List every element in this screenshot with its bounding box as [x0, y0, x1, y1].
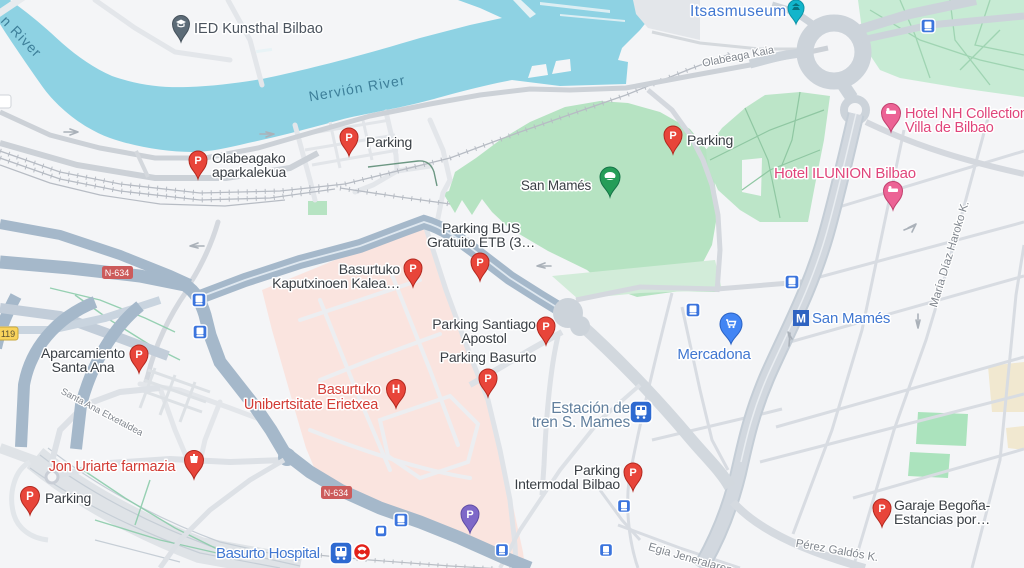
svg-text:Parking: Parking — [687, 132, 733, 148]
svg-text:M: M — [796, 312, 806, 326]
svg-text:P: P — [135, 349, 142, 361]
svg-text:H: H — [392, 384, 400, 396]
svg-text:San Mamés: San Mamés — [812, 310, 890, 327]
svg-text:119: 119 — [1, 329, 15, 339]
svg-text:P: P — [629, 467, 636, 479]
svg-text:P: P — [484, 373, 491, 385]
svg-text:Hotel ILUNION Bilbao: Hotel ILUNION Bilbao — [774, 165, 916, 182]
svg-text:Apostol: Apostol — [461, 330, 506, 346]
svg-text:P: P — [345, 132, 352, 144]
svg-text:Jon Uriarte farmazia: Jon Uriarte farmazia — [49, 459, 177, 475]
svg-text:IED Kunsthal Bilbao: IED Kunsthal Bilbao — [194, 21, 323, 37]
svg-text:Estancias por…: Estancias por… — [894, 511, 990, 527]
svg-text:tren S. Mames: tren S. Mames — [532, 414, 631, 431]
svg-text:Gratuito ETB (3…: Gratuito ETB (3… — [427, 234, 535, 250]
svg-text:P: P — [476, 257, 483, 269]
svg-text:N-634: N-634 — [105, 268, 130, 278]
svg-text:P: P — [669, 130, 676, 142]
svg-text:Itsasmuseum: Itsasmuseum — [690, 3, 787, 20]
svg-text:San Mamés: San Mamés — [521, 178, 592, 193]
svg-text:P: P — [409, 263, 416, 275]
svg-text:Mercadona: Mercadona — [677, 346, 751, 363]
svg-text:Intermodal Bilbao: Intermodal Bilbao — [514, 476, 620, 492]
svg-text:Villa de Bilbao: Villa de Bilbao — [905, 120, 994, 136]
svg-text:Parking: Parking — [45, 490, 91, 506]
svg-text:P: P — [542, 321, 549, 333]
svg-text:Santa Ana: Santa Ana — [52, 359, 115, 375]
svg-text:N-634: N-634 — [324, 488, 349, 498]
svg-text:Parking Basurto: Parking Basurto — [440, 349, 537, 365]
svg-text:Parking: Parking — [366, 134, 412, 150]
svg-text:Unibertsitate Erietxea: Unibertsitate Erietxea — [244, 397, 379, 413]
svg-text:Kaputxinoen Kalea…: Kaputxinoen Kalea… — [272, 275, 400, 291]
svg-text:P: P — [878, 503, 885, 515]
svg-text:Basurto Hospital: Basurto Hospital — [216, 545, 320, 562]
svg-text:aparkalekua: aparkalekua — [212, 164, 286, 180]
svg-text:Basurtuko: Basurtuko — [317, 382, 381, 398]
svg-text:P: P — [194, 155, 201, 167]
svg-text:P: P — [466, 509, 473, 521]
svg-text:P: P — [26, 491, 34, 503]
